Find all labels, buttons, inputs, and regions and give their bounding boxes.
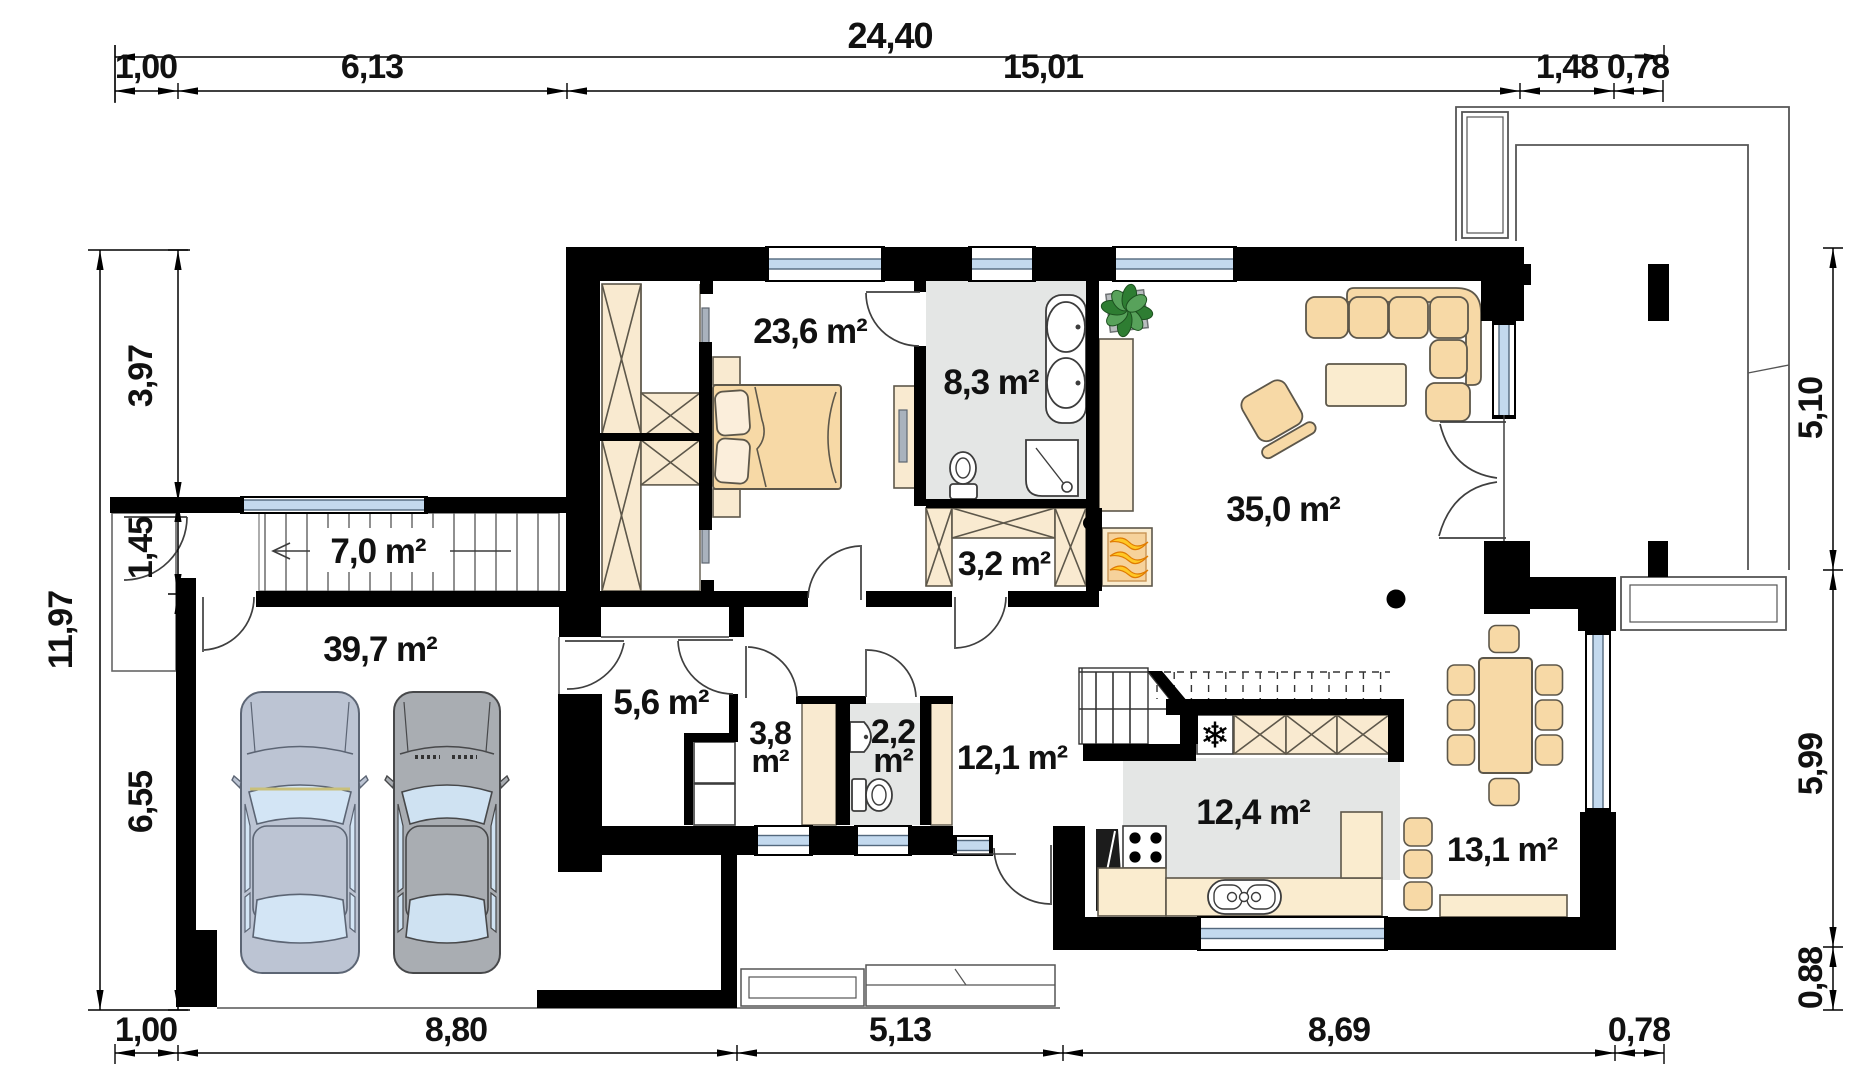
svg-text:13,1 m²: 13,1 m² [1447,831,1558,869]
svg-text:m²: m² [751,743,788,779]
svg-text:15,01: 15,01 [1003,48,1083,86]
svg-text:3,2 m²: 3,2 m² [958,545,1051,583]
svg-text:5,99: 5,99 [1792,733,1830,795]
svg-text:8,3 m²: 8,3 m² [943,363,1038,402]
svg-text:24,40: 24,40 [847,15,932,56]
svg-text:1,00: 1,00 [115,48,177,86]
svg-text:6,55: 6,55 [122,771,160,833]
svg-text:5,10: 5,10 [1792,377,1830,439]
svg-text:0,88: 0,88 [1792,947,1830,1009]
svg-text:11,97: 11,97 [42,591,80,669]
svg-text:12,4 m²: 12,4 m² [1196,793,1310,832]
svg-text:5,13: 5,13 [869,1011,931,1049]
svg-text:5,6 m²: 5,6 m² [613,683,708,722]
svg-text:1,45: 1,45 [122,517,160,579]
svg-text:8,80: 8,80 [425,1011,487,1049]
svg-text:23,6 m²: 23,6 m² [753,312,867,351]
svg-text:3,97: 3,97 [122,345,160,407]
svg-text:1,00: 1,00 [115,1011,177,1049]
svg-text:1,48: 1,48 [1536,48,1598,86]
svg-text:0,78: 0,78 [1607,48,1669,86]
svg-text:0,78: 0,78 [1608,1011,1670,1049]
svg-text:8,69: 8,69 [1308,1011,1370,1049]
svg-text:6,13: 6,13 [341,48,403,86]
svg-text:35,0 m²: 35,0 m² [1226,490,1340,529]
svg-text:m²: m² [873,742,913,780]
svg-text:39,7 m²: 39,7 m² [323,630,437,669]
svg-text:12,1 m²: 12,1 m² [957,739,1068,777]
svg-text:7,0 m²: 7,0 m² [330,532,425,571]
